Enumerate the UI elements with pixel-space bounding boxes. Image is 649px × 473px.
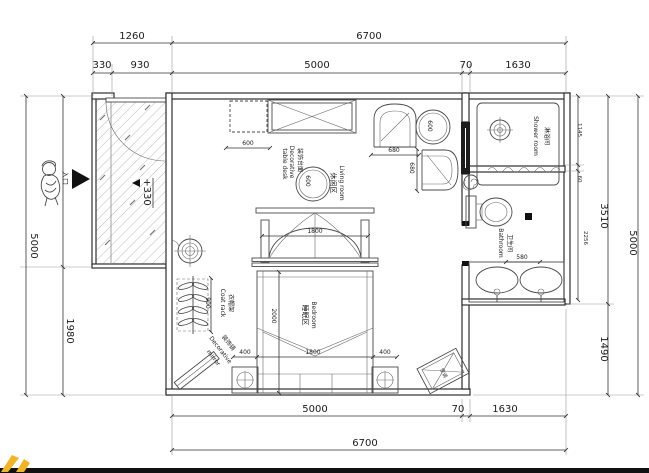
bedroom-label-cn: 睡眠区 (301, 305, 309, 326)
dim-1260: 1260 (119, 31, 144, 42)
dim-930: 930 (130, 60, 149, 71)
cabinet (230, 101, 267, 132)
ac-unit: 空调 (417, 348, 469, 393)
canopy-post-left (261, 220, 269, 262)
porch-left-wall (92, 96, 96, 266)
toilet (466, 196, 512, 228)
ceiling-light-icon (172, 235, 206, 267)
coat-rack-label-en: Coat rack (219, 289, 226, 318)
dim-1145: 1145 (576, 123, 582, 137)
vanity (469, 262, 564, 302)
console-label-en2: table desk (281, 148, 288, 180)
floor-drain-icon (487, 117, 513, 143)
dim-3510: 3510 (598, 203, 609, 228)
bathroom-label-en: Bathroom (497, 228, 504, 258)
headboard-line1 (252, 258, 378, 262)
dim-70-top: 70 (460, 60, 473, 71)
left-wall (166, 93, 172, 395)
living-label-cn: 休闲区 (329, 173, 338, 194)
entry-door-panel (106, 98, 166, 102)
dim-gap-400-left: 400 (239, 349, 251, 356)
dim-60: 60 (576, 176, 582, 183)
door-jamb-top (462, 221, 469, 226)
dim-5000-bottom: 5000 (302, 404, 327, 415)
right-wall-seg2 (462, 174, 469, 225)
dims-left: 5000 1980 (26, 96, 75, 395)
porch-bottom-wall (92, 264, 166, 268)
dim-gap-400-right: 400 (379, 349, 391, 356)
dim-5000-right: 5000 (627, 230, 638, 255)
entrance-arrow-icon (72, 169, 90, 189)
bath-right-wall (564, 93, 570, 304)
canopy-post-right (361, 220, 369, 262)
bedroom-label-en: Bedroom (310, 301, 317, 328)
armchair-right (422, 150, 458, 190)
console-table (268, 100, 356, 133)
column-block (525, 213, 532, 220)
dims-bottom: 5000 70 1630 6700 (172, 404, 566, 450)
top-wall (166, 93, 570, 99)
person-icon (41, 161, 60, 206)
console-label-en1: Decorative (288, 146, 295, 179)
canopy-top-beam (256, 208, 374, 213)
dim-5000-left: 5000 (28, 233, 39, 258)
console-label-cn: 装饰台面 (296, 148, 304, 172)
dims-top: 1260 6700 330 930 5000 70 1630 (92, 31, 566, 73)
shower-label-cn: 淋浴间 (543, 127, 551, 145)
canopy-drape-left (270, 213, 315, 257)
living-label-en: Living room (338, 165, 345, 200)
dim-canopy-1800: 1800 (307, 228, 322, 235)
dim-70-bottom: 70 (452, 404, 465, 415)
coat-rack-label-cn: 衣帽架 (227, 294, 235, 312)
entrance-label: 入口 (61, 171, 69, 185)
floorplan-canvas: 空调 淋浴间 Show (0, 0, 649, 473)
headboard-line2 (252, 263, 378, 267)
dim-bed-2000: 2000 (270, 308, 277, 323)
right-wall-seg1 (462, 93, 469, 122)
dim-bed-1800: 1800 (305, 349, 320, 356)
bed-outline (257, 271, 373, 393)
dim-2256: 2256 (582, 231, 588, 245)
dim-580: 580 (516, 254, 528, 261)
dim-sidetable-600: 600 (426, 120, 433, 132)
porch-hatch (95, 98, 166, 265)
shower-label-en: Shower room (532, 116, 539, 156)
dims-right: 1145 60 2256 3510 1490 5000 (576, 96, 638, 395)
dim-330: 330 (92, 60, 111, 71)
ac-label: 空调 (438, 367, 449, 379)
canopy-drape-right (315, 213, 360, 257)
dim-chair-680w: 680 (388, 147, 400, 154)
dim-5000-top: 5000 (304, 60, 329, 71)
entry-porch (92, 93, 166, 268)
bathroom-label-cn: 卫生间 (506, 234, 514, 252)
door-jamb-bottom (462, 261, 469, 266)
dim-1630-top: 1630 (505, 60, 530, 71)
dim-1980: 1980 (64, 318, 75, 343)
dim-1490: 1490 (598, 336, 609, 361)
level-value: +330 (141, 178, 152, 205)
dim-chair-680d: 680 (408, 162, 415, 174)
dim-6700-top: 6700 (356, 31, 381, 42)
dim-rack-900: 900 (204, 297, 211, 309)
round-table (296, 167, 330, 201)
bottom-edge (0, 455, 649, 473)
dim-cabinet-600: 600 (242, 140, 254, 147)
bottom-bar (0, 468, 649, 473)
coat-rack (177, 276, 208, 334)
dim-6700-bottom: 6700 (352, 438, 377, 449)
floorplan-drawing: 空调 淋浴间 Show (0, 0, 649, 473)
armchair-top (374, 104, 416, 147)
dim-1630-bottom: 1630 (492, 404, 517, 415)
dims-interior: 600 600 600 680 680 1800 2000 400 1800 4… (204, 120, 540, 393)
bottom-wall (166, 389, 470, 395)
dim-roundtable-600: 600 (304, 175, 311, 187)
